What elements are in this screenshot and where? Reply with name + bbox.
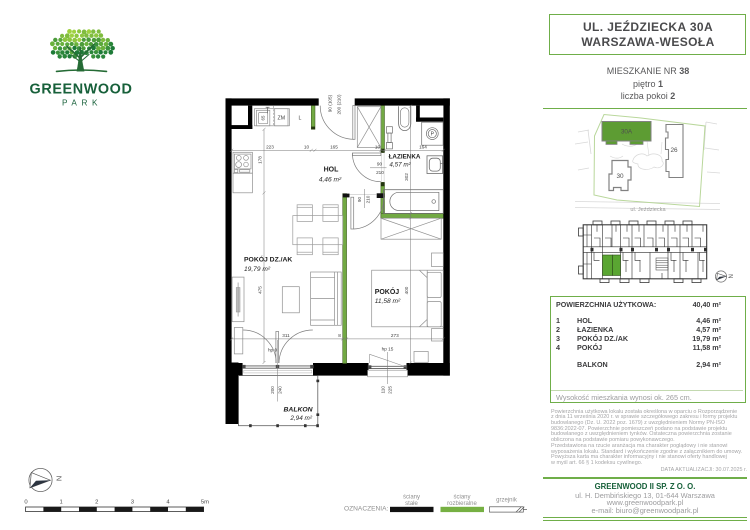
svg-text:65: 65: [261, 115, 266, 120]
svg-text:5m: 5m: [201, 500, 209, 506]
svg-text:210: 210: [376, 170, 384, 175]
svg-text:OZNACZENIA:: OZNACZENIA:: [344, 506, 388, 513]
svg-text:hp 15: hp 15: [382, 346, 394, 351]
svg-text:POKÓJ: POKÓJ: [375, 287, 400, 296]
svg-text:90 (105): 90 (105): [328, 94, 333, 112]
svg-text:rozbieralne: rozbieralne: [447, 501, 477, 507]
svg-text:HOL: HOL: [324, 166, 340, 173]
svg-text:ściany: ściany: [453, 494, 470, 500]
svg-text:2: 2: [95, 500, 98, 506]
svg-text:302: 302: [404, 173, 409, 181]
svg-text:110: 110: [380, 386, 385, 394]
svg-text:ściany: ściany: [403, 494, 420, 500]
svg-text:400: 400: [404, 286, 409, 294]
svg-text:8: 8: [338, 333, 341, 338]
svg-text:grzejnik: grzejnik: [496, 498, 518, 504]
svg-text:N: N: [55, 476, 64, 481]
svg-text:BALKON: BALKON: [284, 407, 314, 414]
svg-text:L: L: [299, 116, 302, 122]
svg-text:2,94 m²: 2,94 m²: [289, 415, 313, 422]
svg-text:178: 178: [257, 156, 262, 164]
svg-text:1: 1: [60, 500, 63, 506]
svg-text:10: 10: [375, 144, 381, 149]
svg-text:223: 223: [266, 145, 274, 150]
svg-text:4,57 m²: 4,57 m²: [389, 162, 411, 169]
svg-text:11,58 m²: 11,58 m²: [375, 298, 401, 305]
svg-text:200 (210): 200 (210): [336, 94, 341, 115]
svg-text:hp 0: hp 0: [268, 348, 278, 353]
svg-text:240: 240: [278, 386, 283, 394]
svg-text:POKÓJ DZ./AK: POKÓJ DZ./AK: [244, 254, 292, 263]
svg-text:273: 273: [391, 333, 399, 338]
svg-text:4,46 m²: 4,46 m²: [319, 176, 342, 183]
svg-text:3: 3: [131, 500, 135, 506]
svg-text:210: 210: [365, 195, 370, 203]
svg-text:475: 475: [257, 286, 262, 294]
svg-text:0: 0: [24, 500, 28, 506]
svg-text:P: P: [431, 132, 435, 138]
svg-text:200: 200: [270, 386, 275, 394]
svg-text:10: 10: [304, 144, 310, 149]
svg-text:4: 4: [166, 500, 170, 506]
svg-text:225: 225: [388, 386, 393, 394]
svg-text:19,79 m²: 19,79 m²: [244, 266, 271, 273]
svg-text:90: 90: [377, 161, 383, 166]
svg-text:165: 165: [330, 145, 338, 150]
svg-text:stałe: stałe: [405, 501, 418, 507]
svg-text:ŁAZIENKA: ŁAZIENKA: [389, 154, 421, 161]
svg-text:ZM: ZM: [278, 116, 286, 122]
svg-text:164: 164: [419, 145, 427, 150]
svg-text:311: 311: [282, 333, 290, 338]
svg-text:90: 90: [357, 197, 362, 203]
